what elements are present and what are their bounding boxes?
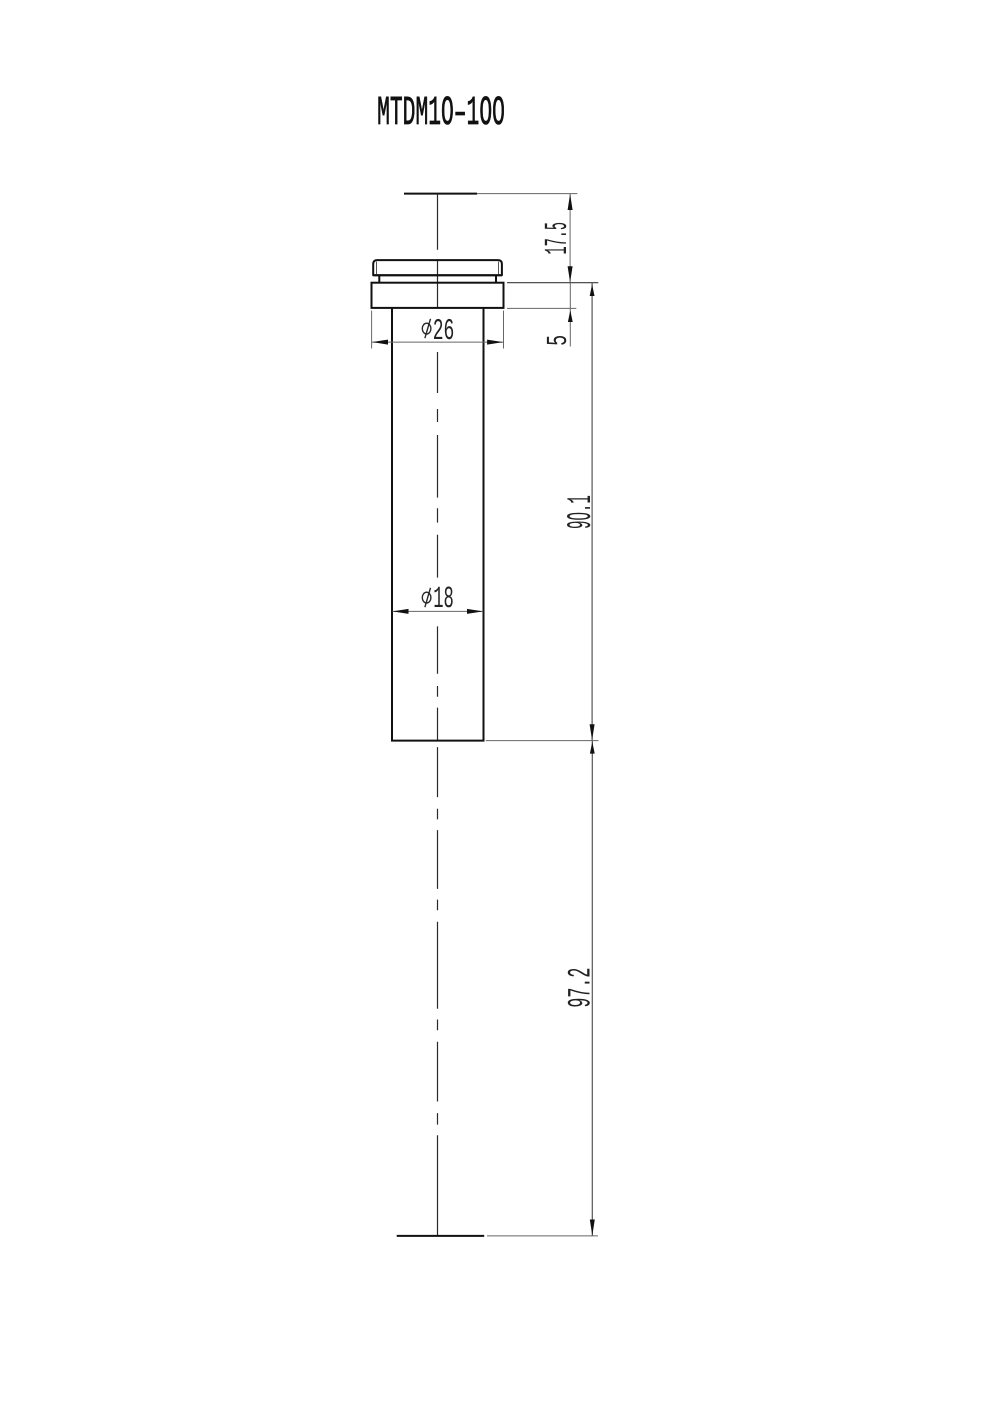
svg-text:18: 18: [433, 582, 454, 617]
svg-text:MTDM1O–1OO: MTDM1O–1OO: [377, 91, 505, 137]
svg-text:5: 5: [542, 335, 575, 346]
svg-text:17.5: 17.5: [539, 222, 576, 255]
svg-text:97.2: 97.2: [562, 968, 599, 1008]
svg-text:9O.1: 9O.1: [562, 495, 601, 529]
svg-text:26: 26: [433, 315, 455, 349]
